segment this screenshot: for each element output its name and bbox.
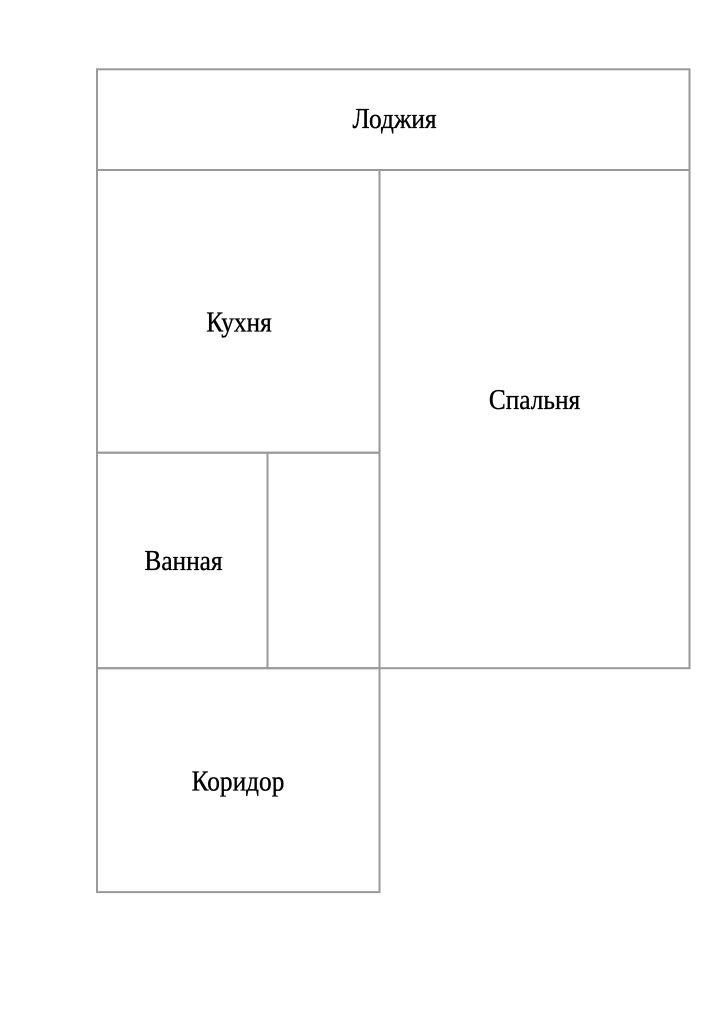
svg-text:Спальня: Спальня: [489, 384, 580, 415]
svg-text:Кухня: Кухня: [206, 306, 272, 337]
svg-text:Лоджия: Лоджия: [352, 103, 436, 134]
svg-text:Коридор: Коридор: [192, 766, 285, 797]
svg-text:Ванная: Ванная: [144, 545, 222, 576]
